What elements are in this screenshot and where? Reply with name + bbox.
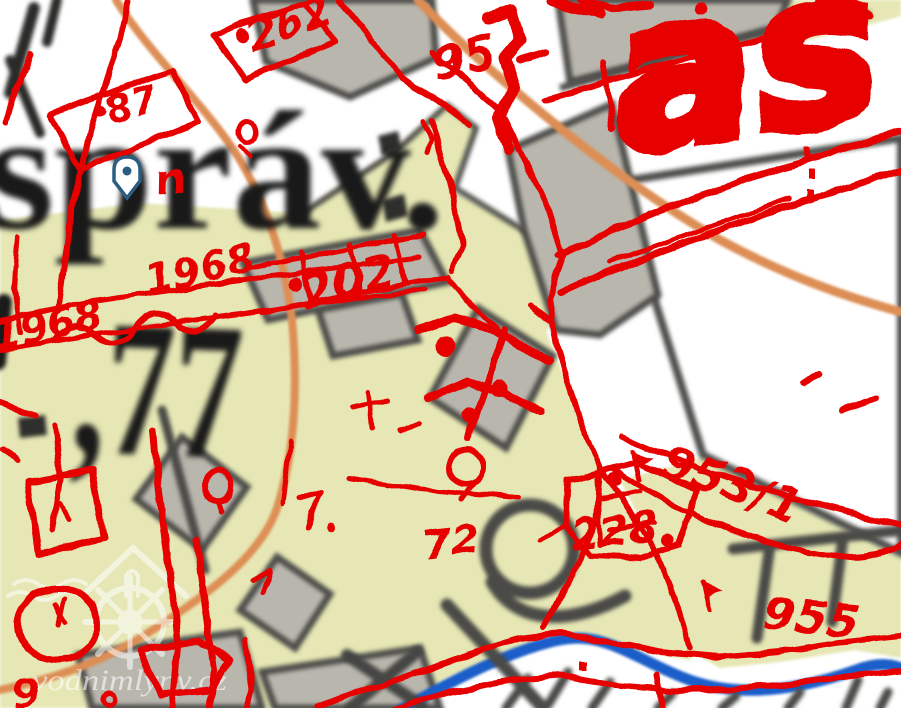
parcel-label-72: 72 bbox=[419, 513, 484, 570]
map-canvas[interactable]: správ. ,77 vodnimlyny.cz bbox=[0, 0, 901, 708]
location-pin-dot bbox=[123, 167, 132, 176]
parcel-label-228: 228 bbox=[568, 502, 660, 560]
parcel-label-9: 9 bbox=[11, 671, 41, 708]
map-viewport[interactable]: správ. ,77 vodnimlyny.cz bbox=[0, 0, 901, 708]
parcel-label-955: 955 bbox=[761, 585, 862, 649]
